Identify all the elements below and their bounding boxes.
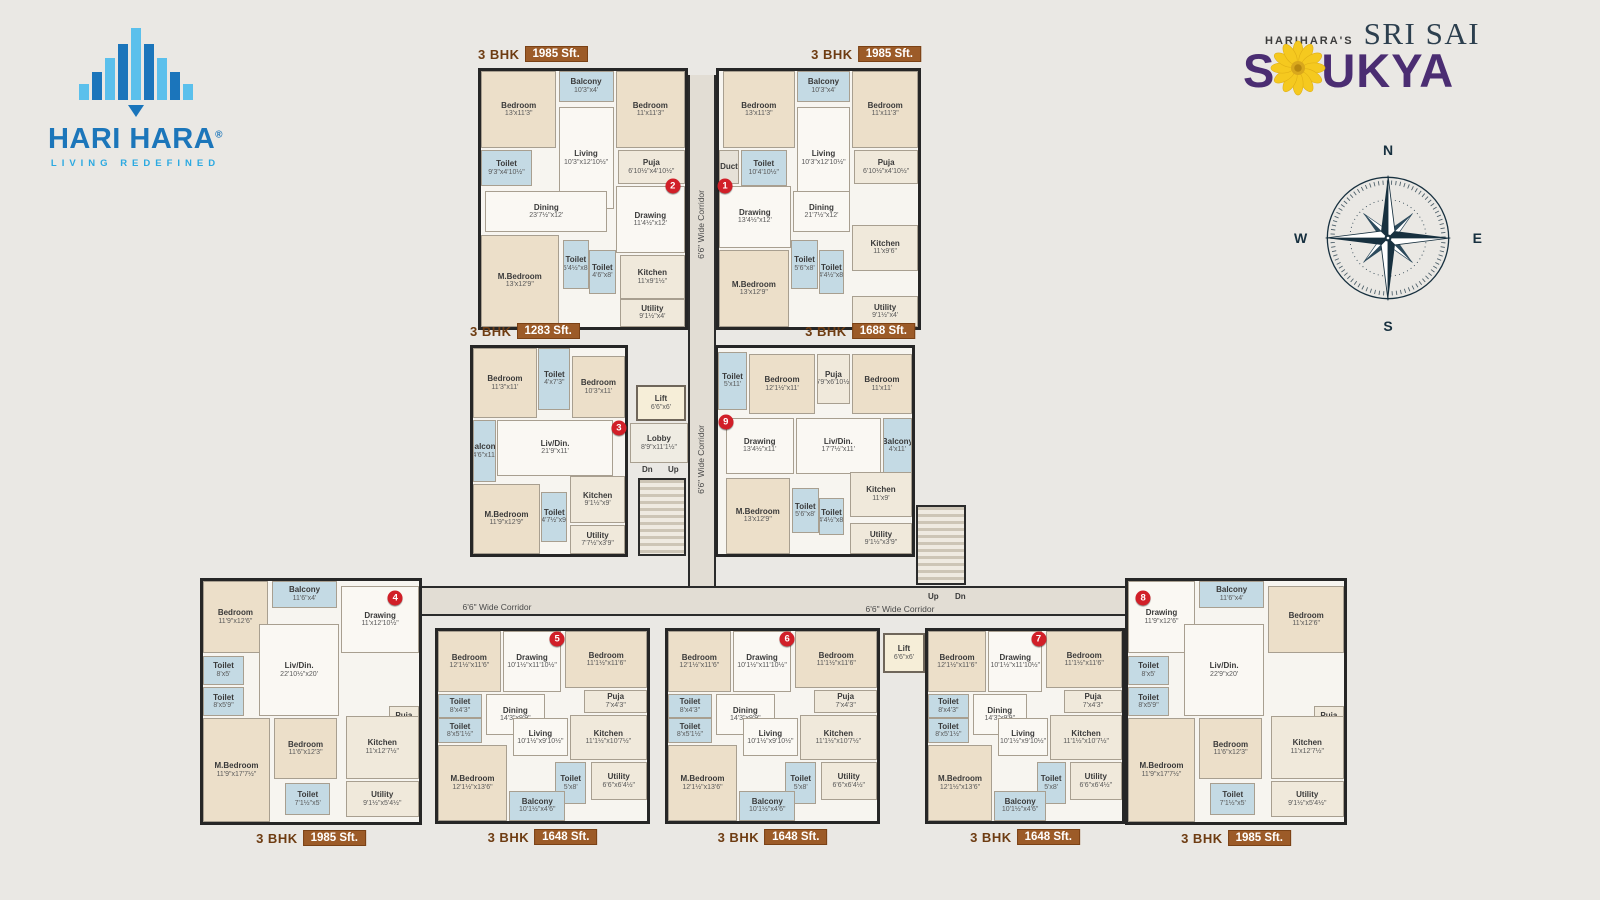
room-kitchen: Kitchen11'x9'6" (852, 225, 918, 271)
room-utility: Utility9'1½"x3'9" (850, 523, 912, 554)
room-dims: 11'9"x17'7½" (1142, 771, 1182, 778)
room-kitchen: Kitchen11'x9'1½" (620, 255, 685, 299)
room-name: Dining (987, 707, 1012, 715)
room-toilet: Toilet8'x4'3" (668, 694, 712, 719)
unit-area-label: 3 BHK1985 Sft. (1181, 830, 1291, 846)
room-name: Bedroom (819, 652, 854, 660)
room-dims: 11'1½"x10'7½" (585, 738, 631, 745)
room-name: Kitchen (1071, 730, 1100, 738)
room-balcony: Balcony11'6"x4' (1199, 581, 1264, 608)
room-dining: Dining23'7½"x12' (485, 191, 607, 232)
room-dims: 11'x11'3" (637, 110, 664, 117)
room-balcony: Balcony10'1½"x4'6" (739, 791, 795, 821)
room-dims: 8'x5'1½" (677, 731, 703, 738)
room-name: Utility (587, 532, 609, 540)
room-utility: Utility9'1½"x5'4½" (1271, 781, 1344, 817)
room-name: Bedroom (581, 379, 616, 387)
room-name: Utility (1085, 773, 1107, 781)
room-dims: 11'x9' (872, 495, 889, 502)
room-dims: 8'x5' (1142, 671, 1156, 678)
room-name: M.Bedroom (736, 508, 780, 516)
room-name: Bedroom (589, 652, 624, 660)
room-dims: 9'1½"x4' (639, 313, 665, 320)
room-dims: 4'x11' (889, 446, 906, 453)
unit-number-badge: 3 (611, 421, 626, 436)
unit-type-label: 3 BHK (488, 830, 530, 845)
corridor-label: 6'6" Wide Corridor (696, 190, 706, 259)
room-toilet: Toilet4'4½"x8' (819, 498, 844, 535)
room-name: Toilet (544, 371, 565, 379)
room-puja: Puja6'10½"x4'10½" (854, 150, 918, 183)
room-dims: 12'1½"x11'6" (679, 662, 719, 669)
lobby: Lobby8'9"x11'1½" (630, 423, 688, 463)
room-dims: 8'x5' (217, 671, 231, 678)
room-balcony: Balcony11'6"x4' (272, 581, 337, 608)
stair-direction-label: Up (928, 592, 939, 601)
room-dims: 11'1½"x11'6" (1065, 660, 1104, 667)
room-name: Puja (1084, 693, 1101, 701)
room-dims: 6'10½"x4'10½" (863, 168, 909, 175)
room-name: Dining (503, 707, 528, 715)
room-name: Drawing (364, 612, 396, 620)
unit-type-label: 3 BHK (1181, 831, 1223, 846)
unit-area-label: 3 BHK1648 Sft. (718, 829, 828, 845)
unit-area-label: 3 BHK1688 Sft. (805, 323, 915, 339)
room-utility: Utility6'6"x6'4½" (591, 762, 647, 800)
room-dims: 11'1½"x11'6" (587, 660, 626, 667)
room-dims: 8'9"x11'1½" (641, 444, 677, 451)
room-puja: Puja7'x4'3" (584, 690, 647, 713)
room-name: Toilet (565, 256, 586, 264)
room-bedroom: Bedroom12'1½"x11'6" (668, 631, 731, 692)
unit-area-badge: 1648 Sft. (534, 829, 597, 845)
room-mbedroom: M.Bedroom12'1½"x13'6" (668, 745, 737, 821)
room-name: Toilet (680, 698, 701, 706)
room-name: Bedroom (868, 102, 903, 110)
room-bedroom: Bedroom12'1½"x11'6" (438, 631, 501, 692)
unit-area-badge: 1648 Sft. (1017, 829, 1080, 845)
room-balcony: Balcony4'x11' (883, 418, 912, 474)
room-dims: 21'9"x11' (541, 448, 569, 455)
room-bedroom: Bedroom11'x11' (852, 354, 912, 414)
room-livdin: Liv/Din.22'9"x20' (1184, 624, 1264, 716)
room-dims: 7'1½"x5' (1220, 800, 1246, 807)
room-name: M.Bedroom (680, 775, 724, 783)
unit-area-badge: 1985 Sft. (1228, 830, 1291, 846)
room-dims: 11'x9'6" (873, 248, 897, 255)
room-name: Toilet (1041, 775, 1062, 783)
unit-area-badge: 1985 Sft. (525, 46, 588, 62)
room-drawing: Drawing13'4½"x12' (719, 186, 791, 247)
room-dims: 11'x12'7½" (1291, 748, 1324, 755)
room-name: M.Bedroom (484, 511, 528, 519)
unit-type-label: 3 BHK (811, 47, 853, 62)
room-name: Puja (643, 159, 660, 167)
room-dims: 5'x8' (794, 784, 808, 791)
unit-area-badge: 1985 Sft. (303, 830, 366, 846)
room-name: Toilet (450, 723, 471, 731)
room-mbedroom: M.Bedroom13'x12'9" (719, 250, 789, 327)
lift: Lift6'6"x6' (636, 385, 686, 421)
room-dims: 11'1½"x10'7½" (1063, 738, 1109, 745)
floor-plan: 6'6" Wide Corridor6'6" Wide Corridor6'6"… (0, 0, 1600, 900)
room-dims: 13'x12'9" (744, 516, 772, 523)
room-name: Bedroom (1289, 612, 1324, 620)
room-bedroom: Bedroom10'3"x11' (572, 356, 625, 418)
room-dims: 17'7½"x11' (822, 446, 855, 453)
room-toilet: Toilet8'x4'3" (438, 694, 482, 719)
room-toilet: Toilet7'1½"x5' (1210, 783, 1255, 814)
room-name: Bedroom (1067, 652, 1102, 660)
room-toilet: Toilet8'x5'1½" (438, 718, 482, 743)
room-balcony: Balcony10'1½"x4'6" (509, 791, 565, 821)
room-name: Utility (838, 773, 860, 781)
room-dims: 9'3"x4'10½" (488, 169, 524, 176)
room-name: Living (529, 730, 553, 738)
room-dims: 22'10½"x20' (280, 671, 318, 678)
stair-direction-label: Up (668, 465, 679, 474)
room-dims: 11'1½"x11'6" (817, 660, 856, 667)
room-name: Bedroom (741, 102, 776, 110)
room-kitchen: Kitchen9'1½"x9' (570, 476, 625, 523)
room-dims: 4'7½"x9' (541, 517, 567, 524)
unit-area-label: 3 BHK1985 Sft. (811, 46, 921, 62)
room-dims: 9'1½"x9' (585, 500, 611, 507)
room-toilet: Toilet4'7½"x9' (541, 492, 567, 541)
unit-type-label: 3 BHK (805, 324, 847, 339)
room-name: M.Bedroom (450, 775, 494, 783)
room-dims: 8'x4'3" (938, 707, 958, 714)
room-kitchen: Kitchen11'1½"x10'7½" (800, 715, 877, 761)
room-name: Toilet (680, 723, 701, 731)
unit-number-badge: 4 (388, 590, 403, 605)
room-utility: Utility9'1½"x5'4½" (346, 781, 419, 817)
unit-6: Bedroom12'1½"x11'6"Drawing10'1½"x11'10½"… (665, 628, 880, 824)
room-dims: 6'6"x6' (894, 654, 914, 661)
room-dims: 9'1½"x5'4½" (363, 800, 401, 807)
room-mbedroom: M.Bedroom11'9"x17'7½" (203, 718, 270, 822)
room-name: Kitchen (866, 486, 895, 494)
room-dims: 4'6"x8' (592, 272, 612, 279)
room-name: Toilet (795, 503, 816, 511)
room-dims: 6'6"x6'4½" (602, 782, 635, 789)
room-dims: 11'1½"x10'7½" (815, 738, 861, 745)
room-toilet: Toilet8'x5'1½" (668, 718, 712, 743)
room-living: Living10'1½"x9'10½" (998, 718, 1048, 756)
room-dims: 7'x4'3" (605, 702, 625, 709)
floor-plan-canvas: HARI HARA® LIVING REDEFINED HARIHARA'S S… (0, 0, 1600, 900)
room-bedroom: Bedroom12'1½"x11' (749, 354, 815, 414)
room-name: Kitchen (870, 240, 899, 248)
room-name: Bedroom (682, 654, 717, 662)
room-name: Balcony (570, 78, 601, 86)
room-name: M.Bedroom (498, 273, 542, 281)
unit-9: Toilet5'x11'Bedroom12'1½"x11'Puja5'9"x6'… (715, 345, 915, 557)
room-name: Utility (608, 773, 630, 781)
room-name: Balcony (289, 586, 320, 594)
room-mbedroom: M.Bedroom12'1½"x13'6" (928, 745, 992, 821)
room-balcony: Balcony10'1½"x4'6" (994, 791, 1046, 821)
room-name: Balcony (883, 438, 912, 446)
room-drawing: Drawing13'4½"x11' (726, 418, 794, 474)
room-dims: 8'x5'1½" (447, 731, 473, 738)
room-name: Bedroom (452, 654, 487, 662)
room-dims: 6'6"x6' (651, 404, 671, 411)
room-name: Balcony (1216, 586, 1247, 594)
room-name: Toilet (1138, 694, 1159, 702)
room-puja: Puja7'x4'3" (1064, 690, 1122, 713)
room-name: Lift (655, 395, 667, 403)
room-toilet: Toilet5'4½"x8' (563, 240, 590, 289)
room-utility: Utility9'1½"x4' (620, 299, 685, 327)
room-dims: 10'1½"x9'10½" (747, 738, 793, 745)
room-bedroom: Bedroom12'1½"x11'6" (928, 631, 986, 692)
room-toilet: Toilet4'x7'3" (538, 348, 570, 410)
room-kitchen: Kitchen11'x9' (850, 472, 912, 517)
room-name: Liv/Din. (541, 440, 570, 448)
room-dims: 13'x11'3" (505, 110, 533, 117)
room-toilet: Toilet5'6"x8' (791, 240, 819, 289)
room-dims: 22'9"x20' (1210, 671, 1238, 678)
room-dims: 10'1½"x9'10½" (1000, 738, 1046, 745)
room-name: Lift (898, 645, 910, 653)
room-kitchen: Kitchen11'1½"x10'7½" (570, 715, 647, 761)
room-dims: 10'3"x11' (585, 388, 613, 395)
room-name: M.Bedroom (732, 281, 776, 289)
unit-area-label: 3 BHK1648 Sft. (488, 829, 598, 845)
room-dims: 6'6"x6'4½" (832, 782, 865, 789)
unit-area-label: 3 BHK1283 Sft. (470, 323, 580, 339)
room-dims: 6'10½"x4'10½" (628, 168, 674, 175)
room-name: Puja (878, 159, 895, 167)
room-dims: 11'9"x12'6" (1144, 618, 1178, 625)
room-bedroom: Bedroom11'1½"x11'6" (1046, 631, 1122, 688)
room-name: Living (1011, 730, 1035, 738)
room-bedroom: Bedroom13'x11'3" (723, 71, 795, 148)
room-kitchen: Kitchen11'1½"x10'7½" (1050, 715, 1122, 761)
room-dims: 11'x12'6" (1292, 620, 1320, 627)
room-name: Balcony (473, 443, 496, 451)
room-name: Toilet (790, 775, 811, 783)
unit-type-label: 3 BHK (718, 830, 760, 845)
unit-2: Bedroom13'x11'3"Balcony10'3"x4'Bedroom11… (478, 68, 688, 330)
room-dims: 12'1½"x11' (765, 385, 798, 392)
room-dims: 21'7½"x12' (804, 212, 838, 219)
room-dims: 5'6"x8' (795, 511, 815, 518)
room-name: Toilet (1222, 791, 1243, 799)
room-name: Puja (837, 693, 854, 701)
unit-number-badge: 9 (718, 415, 733, 430)
room-dims: 11'9"x17'7½" (217, 771, 257, 778)
room-name: Living (574, 150, 598, 158)
room-name: Toilet (1138, 662, 1159, 670)
room-drawing: Drawing11'4½"x12' (616, 186, 685, 253)
room-name: Liv/Din. (285, 662, 314, 670)
room-dims: 6'6"x6'4½" (1080, 782, 1113, 789)
room-toilet: Toilet8'x5' (203, 656, 244, 685)
unit-number-badge: 5 (550, 631, 565, 646)
room-utility: Utility7'7½"x3'9" (570, 525, 625, 554)
room-dims: 4'4½"x8' (819, 517, 844, 524)
room-livdin: Liv/Din.21'9"x11' (497, 420, 613, 476)
room-toilet: Toilet10'4'10½" (741, 150, 787, 186)
room-mbedroom: M.Bedroom11'9"x17'7½" (1128, 718, 1195, 822)
room-name: Utility (870, 531, 892, 539)
room-bedroom: Bedroom11'1½"x11'6" (795, 631, 877, 688)
room-dims: 10'1½"x11'10½" (991, 662, 1041, 669)
room-name: Kitchen (638, 269, 667, 277)
room-name: Bedroom (764, 376, 799, 384)
unit-1: Bedroom13'x11'3"Balcony10'3"x4'Bedroom11… (716, 68, 921, 330)
room-mbedroom: M.Bedroom13'x12'9" (726, 478, 790, 554)
room-toilet: Toilet5'x11' (718, 352, 747, 410)
room-dims: 10'3"x12'10½" (801, 159, 845, 166)
room-name: Drawing (516, 654, 548, 662)
room-bedroom: Bedroom11'3"x11' (473, 348, 537, 418)
room-dims: 8'x5'9" (1138, 702, 1158, 709)
room-bedroom: Bedroom11'6"x12'3" (1199, 718, 1262, 778)
room-dims: 8'x5'1½" (935, 731, 961, 738)
room-dims: 11'6"x12'3" (1214, 749, 1248, 756)
room-mbedroom: M.Bedroom13'x12'9" (481, 235, 559, 327)
room-bedroom: Bedroom11'1½"x11'6" (565, 631, 647, 688)
room-dims: 11'x12'10½" (361, 620, 398, 627)
room-name: Bedroom (1213, 741, 1248, 749)
room-dims: 12'1½"x11'6" (937, 662, 977, 669)
room-name: Living (759, 730, 783, 738)
stair-direction-label: Dn (642, 465, 653, 474)
unit-type-label: 3 BHK (970, 830, 1012, 845)
room-dims: 11'x11' (872, 385, 893, 392)
room-name: M.Bedroom (1139, 762, 1183, 770)
room-toilet: Toilet9'3"x4'10½" (481, 150, 532, 186)
room-dims: 10'3"x4' (574, 87, 598, 94)
room-name: Toilet (722, 373, 743, 381)
room-dims: 11'x11'3" (872, 110, 899, 117)
room-dims: 7'1½"x5' (295, 800, 321, 807)
room-dims: 8'x4'3" (450, 707, 470, 714)
room-name: Toilet (938, 698, 959, 706)
lift: Lift6'6"x6' (883, 633, 925, 673)
room-name: Bedroom (501, 102, 536, 110)
room-bedroom: Bedroom11'x11'3" (616, 71, 685, 148)
room-dims: 23'7½"x12' (529, 212, 563, 219)
corridor (688, 75, 716, 588)
room-dims: 11'9"x12'9" (489, 519, 523, 526)
staircase (638, 478, 686, 556)
room-toilet: Toilet8'x5'9" (203, 687, 244, 716)
room-name: Kitchen (594, 730, 623, 738)
room-name: Kitchen (1293, 739, 1322, 747)
room-dims: 10'1½"x11'10½" (507, 662, 557, 669)
room-dims: 10'1½"x11'10½" (737, 662, 787, 669)
room-name: Toilet (794, 256, 815, 264)
unit-3: Bedroom11'3"x11'Toilet4'x7'3"Bedroom10'3… (470, 345, 628, 557)
room-name: Dining (733, 707, 758, 715)
room-dining: Dining21'7½"x12' (793, 191, 851, 232)
room-dims: 11'6"x12'3" (289, 749, 323, 756)
room-dims: 11'x9'1½" (638, 278, 668, 285)
room-dims: 9'1½"x4' (872, 312, 898, 319)
room-dims: 13'4½"x11' (743, 446, 776, 453)
room-toilet: Toilet7'1½"x5' (285, 783, 330, 814)
room-utility: Utility6'6"x6'4½" (1070, 762, 1122, 800)
room-living: Living10'1½"x9'10½" (513, 718, 567, 756)
room-name: Toilet (450, 698, 471, 706)
room-name: Drawing (635, 212, 667, 220)
room-name: Drawing (1000, 654, 1032, 662)
unit-area-badge: 1985 Sft. (858, 46, 921, 62)
room-dims: 12'1½"x11'6" (449, 662, 489, 669)
room-dims: 13'x12'9" (740, 289, 768, 296)
room-dims: 9'1½"x5'4½" (1288, 800, 1326, 807)
room-name: Utility (1296, 791, 1318, 799)
room-toilet: Toilet4'6"x8' (589, 250, 616, 294)
room-name: Toilet (297, 791, 318, 799)
room-livdin: Liv/Din.17'7½"x11' (796, 418, 881, 474)
room-toilet: Toilet8'x4'3" (928, 694, 969, 719)
unit-area-badge: 1648 Sft. (764, 829, 827, 845)
room-name: Toilet (592, 264, 613, 272)
room-dims: 10'4'10½" (749, 169, 779, 176)
corridor-label: 6'6" Wide Corridor (463, 602, 532, 612)
room-name: Bedroom (218, 609, 253, 617)
unit-area-label: 3 BHK1648 Sft. (970, 829, 1080, 845)
unit-area-badge: 1688 Sft. (852, 323, 915, 339)
room-dims: 11'3"x11' (491, 384, 518, 391)
room-name: Toilet (213, 662, 234, 670)
room-dims: 11'9"x12'6" (218, 618, 252, 625)
room-dims: 5'x8' (564, 784, 578, 791)
room-toilet: Toilet8'x5'9" (1128, 687, 1169, 716)
corridor-label: 6'6" Wide Corridor (696, 425, 706, 494)
unit-number-badge: 8 (1136, 590, 1151, 605)
room-dims: 4'4½"x8' (819, 272, 845, 279)
corridor-label: 6'6" Wide Corridor (866, 604, 935, 614)
room-living: Living10'1½"x9'10½" (743, 718, 797, 756)
room-name: Puja (607, 693, 624, 701)
unit-area-badge: 1283 Sft. (517, 323, 580, 339)
room-dims: 4'x7'3" (544, 379, 564, 386)
room-toilet: Toilet8'x5' (1128, 656, 1169, 685)
unit-4: Bedroom11'9"x12'6"Balcony11'6"x4'Drawing… (200, 578, 422, 825)
room-name: Bedroom (288, 741, 323, 749)
unit-5: Bedroom12'1½"x11'6"Drawing10'1½"x11'10½"… (435, 628, 650, 824)
room-bedroom: Bedroom13'x11'3" (481, 71, 556, 148)
room-dims: 10'1½"x4'6" (1002, 806, 1038, 813)
room-livdin: Liv/Din.22'10½"x20' (259, 624, 339, 716)
room-name: M.Bedroom (938, 775, 982, 783)
room-dims: 13'x11'3" (745, 110, 773, 117)
room-dims: 10'3"x4' (811, 87, 835, 94)
stair-direction-label: Dn (955, 592, 966, 601)
room-dims: 10'3"x12'10½" (564, 159, 608, 166)
room-name: Lobby (647, 435, 671, 443)
room-dims: 7'7½"x3'9" (581, 540, 614, 547)
room-dims: 10'1½"x4'6" (749, 806, 785, 813)
unit-type-label: 3 BHK (478, 47, 520, 62)
unit-number-badge: 1 (717, 179, 732, 194)
unit-7: Bedroom12'1½"x11'6"Drawing10'1½"x11'10½"… (925, 628, 1125, 824)
unit-number-badge: 6 (780, 631, 795, 646)
room-bedroom: Bedroom11'x11'3" (852, 71, 918, 148)
room-dims: 11'6"x4' (293, 595, 317, 602)
room-dims: 12'1½"x13'6" (452, 784, 492, 791)
room-name: Utility (371, 791, 393, 799)
room-balcony: Balcony10'3"x4' (797, 71, 851, 102)
unit-type-label: 3 BHK (470, 324, 512, 339)
room-mbedroom: M.Bedroom11'9"x12'9" (473, 484, 540, 554)
